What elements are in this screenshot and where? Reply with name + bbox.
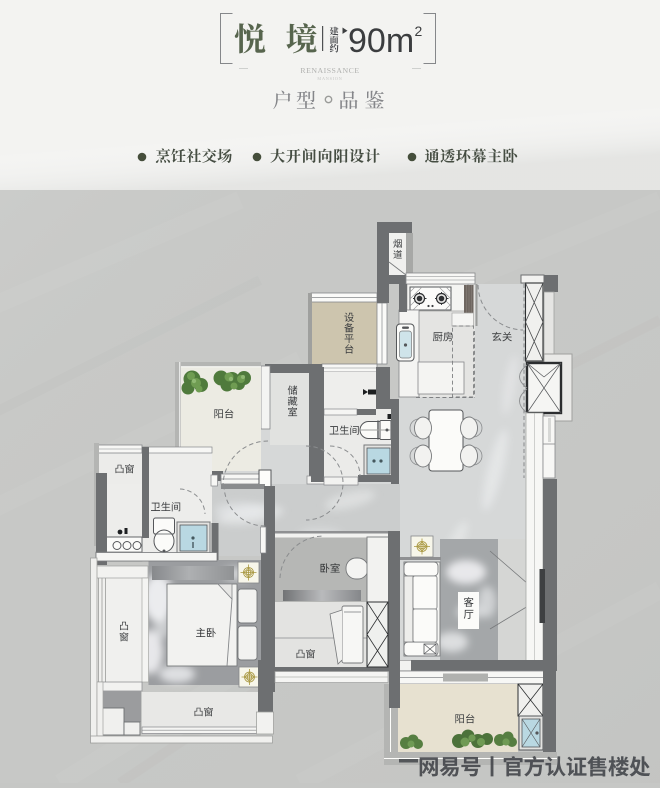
svg-text:2: 2 — [415, 23, 423, 39]
svg-text:90m: 90m — [348, 22, 414, 60]
svg-text:RENAISSANCE: RENAISSANCE — [300, 66, 359, 75]
svg-text:MANSION: MANSION — [317, 76, 342, 81]
